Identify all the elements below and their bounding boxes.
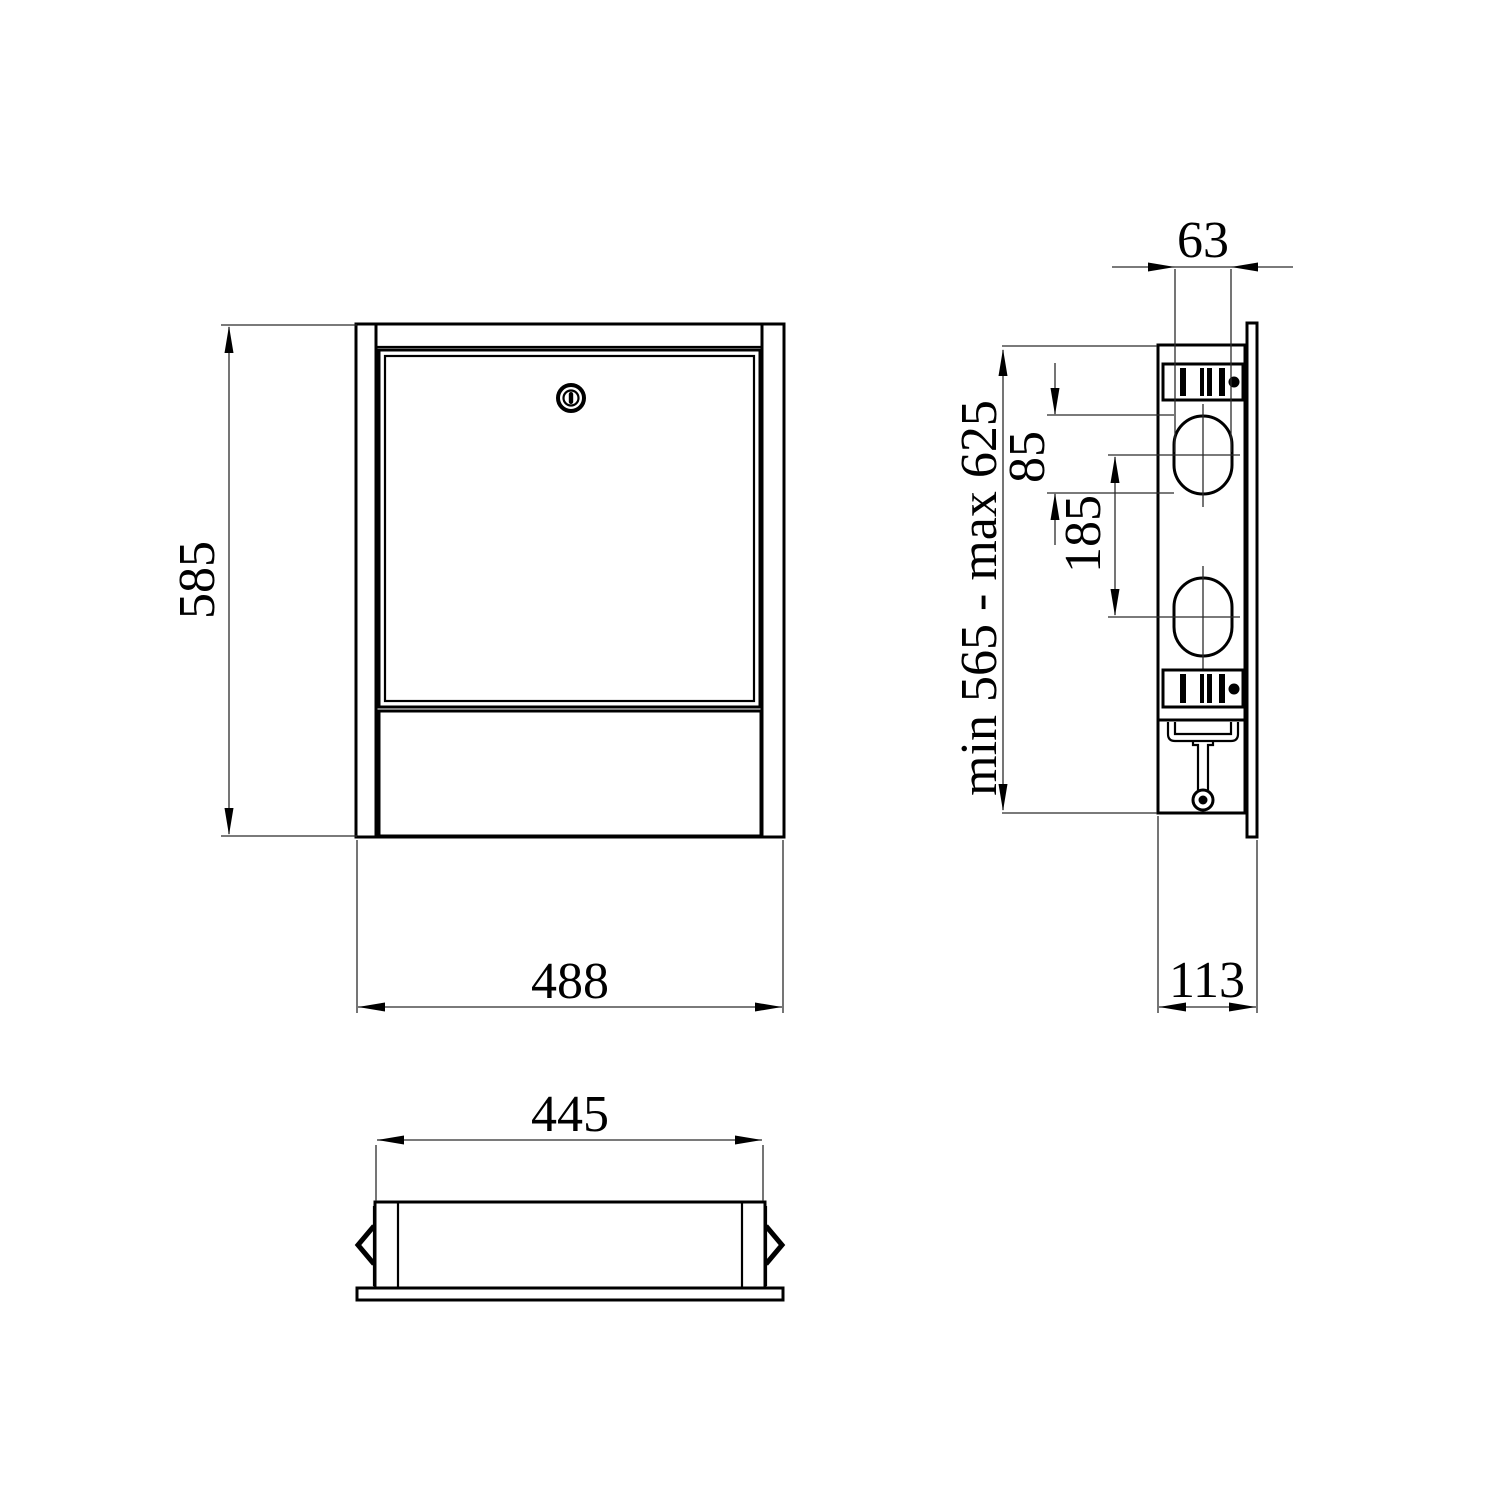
- arrowhead-right-icon: [1148, 263, 1175, 272]
- technical-drawing: 585 488 63 min 565 - max 625 85: [0, 0, 1500, 1500]
- dim-top-width: 445: [376, 1086, 763, 1201]
- bracket-slot-bar: [1219, 674, 1225, 703]
- arrowhead-right-icon: [755, 1003, 782, 1012]
- arrowhead-left-icon: [1231, 263, 1258, 272]
- front-view: [356, 324, 784, 837]
- bottom-panel: [379, 711, 761, 836]
- bracket-slot-bar: [1207, 368, 1212, 396]
- front-flange-plate: [1247, 323, 1257, 837]
- rail-bracket-bottom: [1163, 670, 1243, 707]
- dimension-label: 185: [1055, 495, 1112, 573]
- drawing-canvas: 585 488 63 min 565 - max 625 85: [0, 0, 1500, 1500]
- adjustable-leg: [1159, 720, 1245, 810]
- bracket-slot-bar: [1180, 674, 1186, 703]
- clip-chevron-icon: [358, 1226, 374, 1264]
- dimension-label: 445: [531, 1086, 609, 1143]
- lock-icon: [558, 385, 584, 411]
- bracket-slot-bar: [1219, 368, 1225, 396]
- dimension-label: 585: [169, 541, 226, 619]
- dim-front-width: 488: [357, 840, 783, 1013]
- arrowhead-up-icon: [225, 326, 234, 353]
- dim-hole-spacing: 185: [1055, 455, 1240, 617]
- door-panel-inner-line: [385, 356, 754, 701]
- dim-front-height: 585: [169, 325, 357, 836]
- leg-foot-center: [1199, 796, 1208, 805]
- dimension-label: 85: [999, 431, 1056, 483]
- bracket-slot-bar: [1180, 368, 1186, 396]
- bracket-screw-dot: [1229, 684, 1240, 695]
- leg-channel-inner: [1175, 722, 1231, 734]
- side-view: [1158, 323, 1257, 837]
- arrowhead-right-icon: [735, 1136, 762, 1145]
- dimension-label: 488: [531, 953, 609, 1010]
- arrowhead-down-icon: [1051, 388, 1060, 415]
- top-view: [357, 1202, 783, 1300]
- top-body-outline: [375, 1202, 765, 1288]
- door-panel: [379, 350, 760, 707]
- dimension-label: 63: [1177, 212, 1229, 269]
- spring-clip-left: [358, 1206, 374, 1286]
- dim-side-depth: 113: [1158, 816, 1257, 1013]
- keyhole-icon: [569, 392, 573, 404]
- spring-clip-right: [766, 1206, 782, 1286]
- arrowhead-up-icon: [999, 349, 1008, 376]
- bracket-slot-bar: [1200, 674, 1204, 703]
- bracket-slot-bar: [1200, 368, 1204, 396]
- arrowhead-left-icon: [358, 1003, 385, 1012]
- dim-side-height-range: min 565 - max 625: [951, 346, 1157, 813]
- dimension-label: 113: [1169, 952, 1245, 1009]
- leg-channel-outer: [1168, 722, 1238, 741]
- front-flange-strip: [357, 1288, 783, 1300]
- bracket-screw-dot: [1229, 377, 1240, 388]
- arrowhead-up-icon: [1111, 456, 1120, 483]
- arrowhead-down-icon: [225, 808, 234, 835]
- arrowhead-left-icon: [377, 1136, 404, 1145]
- bracket-slot-bar: [1207, 674, 1212, 703]
- arrowhead-down-icon: [1111, 589, 1120, 616]
- leg-stem: [1193, 741, 1213, 790]
- clip-chevron-icon: [766, 1226, 782, 1264]
